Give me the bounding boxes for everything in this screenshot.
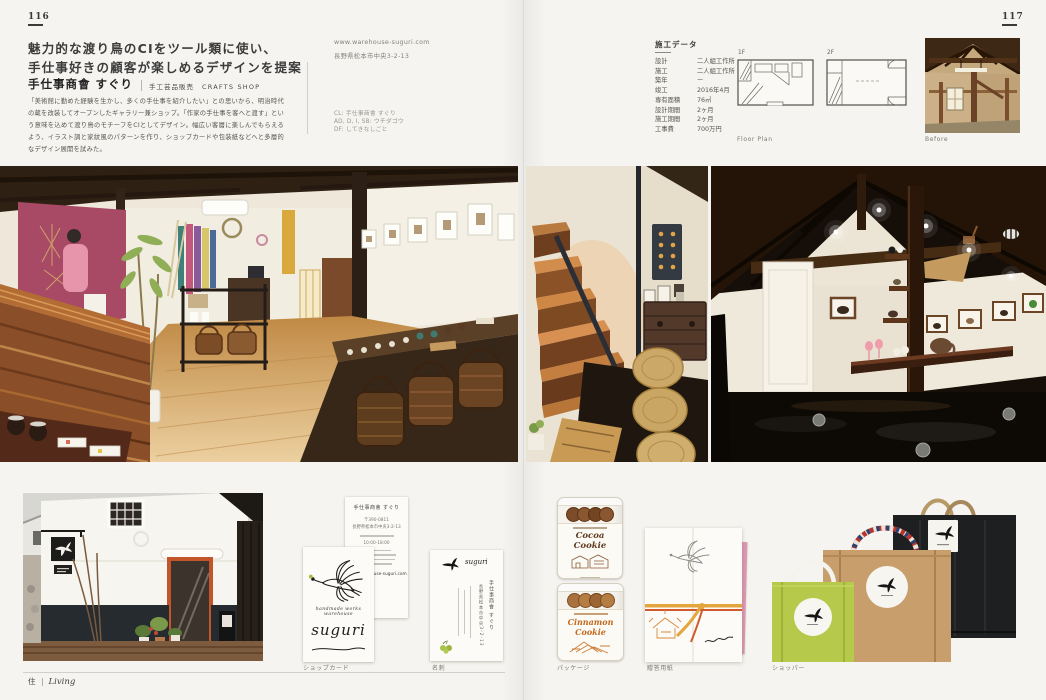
shop-building-line-art (568, 552, 612, 570)
air-conditioner (202, 200, 248, 215)
headline-line-2: 手仕事好きの顧客が楽しめるデザインを提案 (28, 58, 302, 77)
article-headline: 魅力的な渡り鳥のCIをツール類に使い、 手仕事好きの顧客が楽しめるデザインを提案 (28, 39, 302, 77)
cocoa-cookie-label: Cocoa Cookie (558, 531, 622, 551)
cd-label: 施工 (655, 67, 697, 77)
back-card-address: 長野県松本市中央3-2-13 (345, 524, 408, 531)
intro-paragraph: 「美術館に勤めた経験を生かし、多くの手仕事を紹介したい」との思いから、明治時代の… (28, 96, 284, 156)
back-card-hours: 10:00-18:00 (345, 540, 408, 547)
light-panel (652, 224, 682, 280)
cd-label: 工事費 (655, 125, 697, 135)
shop-website: www.warehouse-suguri.com (334, 39, 430, 46)
floor-plan-1f-label: 1F (738, 50, 745, 56)
shop-title-divider (141, 80, 142, 91)
page-number-right: 117 (1002, 12, 1024, 22)
page-number-left-rule (28, 24, 43, 26)
cinnamon-cookie-label: Cinnamon Cookie (558, 617, 623, 637)
wood-post (352, 172, 367, 332)
footer-category-en: Living (49, 677, 76, 687)
construction-data-rule (655, 52, 671, 53)
floor-plan-1f (737, 59, 814, 106)
gooseberry-illustration (438, 640, 454, 654)
cd-value: 76㎡ (697, 97, 711, 104)
footer-rule (23, 672, 505, 673)
shop-title-row: 手仕事商會 すぐり 手工芸品販売 CRAFTS SHOP (28, 76, 260, 92)
logo-swash (311, 645, 366, 653)
column-divider (307, 62, 308, 134)
headline-line-1: 魅力的な渡り鳥のCIをツール類に使い、 (28, 39, 302, 58)
business-card: suguri 手仕事商會 すぐり 長野県松本市中央3-2-13 (430, 550, 503, 661)
caption-shop-card: ショップカード (303, 663, 349, 672)
shop-address: 長野県松本市中央3-2-13 (334, 51, 409, 60)
cd-value: 二人組工作所 (697, 58, 735, 65)
construction-data-table: 設計二人組工作所 施工二人組工作所 築年ー 竣工2016年4月 専有面積76㎡ … (655, 57, 735, 135)
black-bag-sticker (928, 520, 958, 552)
cd-label: 専有面積 (655, 96, 697, 106)
landscape-line-art (568, 638, 614, 654)
cd-label: 築年 (655, 76, 697, 86)
business-card-address-vertical: 長野県松本市中央3-2-13 (477, 584, 483, 654)
cd-value: 二人組工作所 (697, 68, 735, 75)
cinnamon-cookie-jar: Cinnamon Cookie (557, 583, 624, 661)
gift-wrap (645, 528, 742, 662)
cd-value: 2ヶ月 (697, 116, 714, 123)
cd-label: 竣工 (655, 86, 697, 96)
cd-label: 設計 (655, 57, 697, 67)
monstera-leaf (1029, 300, 1037, 308)
photo-attic-gallery (711, 166, 1046, 462)
suguri-logotype: suguri (303, 621, 374, 639)
black-wainscot (41, 605, 169, 643)
credit-designer: AD, D, I, SB: ウチダゴウ (334, 118, 404, 126)
business-card-shopname-vertical: 手仕事商會 すぐり (488, 580, 495, 652)
caption-business-card: 名刺 (432, 663, 445, 672)
migratory-bird-illustration (309, 557, 367, 603)
floor-plan-2f (826, 59, 907, 106)
photo-staircase (526, 166, 708, 462)
floor-plan-2f-label: 2F (827, 50, 834, 56)
caption-gift-paper: 贈答用紙 (647, 663, 673, 672)
white-door (763, 262, 813, 392)
before-caption: Before (925, 136, 948, 143)
photo-shop-exterior (23, 493, 263, 661)
credit-firm: DF: してきなしごと (334, 126, 404, 134)
cd-label: 設計期間 (655, 106, 697, 116)
shopping-bags (770, 490, 1046, 663)
cd-value: ー (697, 77, 703, 84)
page-number-left: 116 (28, 12, 50, 22)
back-card-postal: 〒390-0811 (345, 517, 408, 524)
footer-category-jp: 住 (28, 676, 36, 687)
business-card-logotype: suguri (465, 558, 488, 566)
construction-data-title: 施工データ (655, 39, 698, 50)
yellow-banner (282, 210, 295, 274)
before-photo (925, 38, 1020, 133)
lattice-window (109, 501, 143, 527)
credit-client: CL: 手仕事商會 すぐり (334, 110, 404, 118)
photo-shop-interior (0, 166, 518, 462)
shop-card-front: handmade works warehouse suguri (303, 547, 374, 662)
shop-card-tagline: handmade works warehouse (303, 607, 374, 617)
back-card-title: 手仕事商會 すぐり (345, 504, 408, 511)
cd-value: 700万円 (697, 126, 722, 133)
footer-category: 住 Living (28, 676, 75, 687)
shop-category: 手工芸品販売 (149, 81, 194, 91)
cocoa-cookie-jar: Cocoa Cookie (557, 497, 623, 579)
caption-package: パッケージ (557, 663, 590, 672)
cd-value: 2ヶ月 (697, 107, 714, 114)
caption-shopper: ショッパー (772, 663, 805, 672)
cd-value: 2016年4月 (697, 87, 730, 94)
shop-name: 手仕事商會 すぐり (28, 76, 133, 92)
page-number-right-rule (1002, 24, 1017, 26)
cd-label: 施工期間 (655, 115, 697, 125)
bird-logo-icon (437, 557, 463, 571)
floor-plan-caption: Floor Plan (737, 136, 773, 143)
credits-block: CL: 手仕事商會 すぐり AD, D, I, SB: ウチダゴウ DF: して… (334, 110, 404, 135)
shop-category-en: CRAFTS SHOP (202, 83, 260, 91)
